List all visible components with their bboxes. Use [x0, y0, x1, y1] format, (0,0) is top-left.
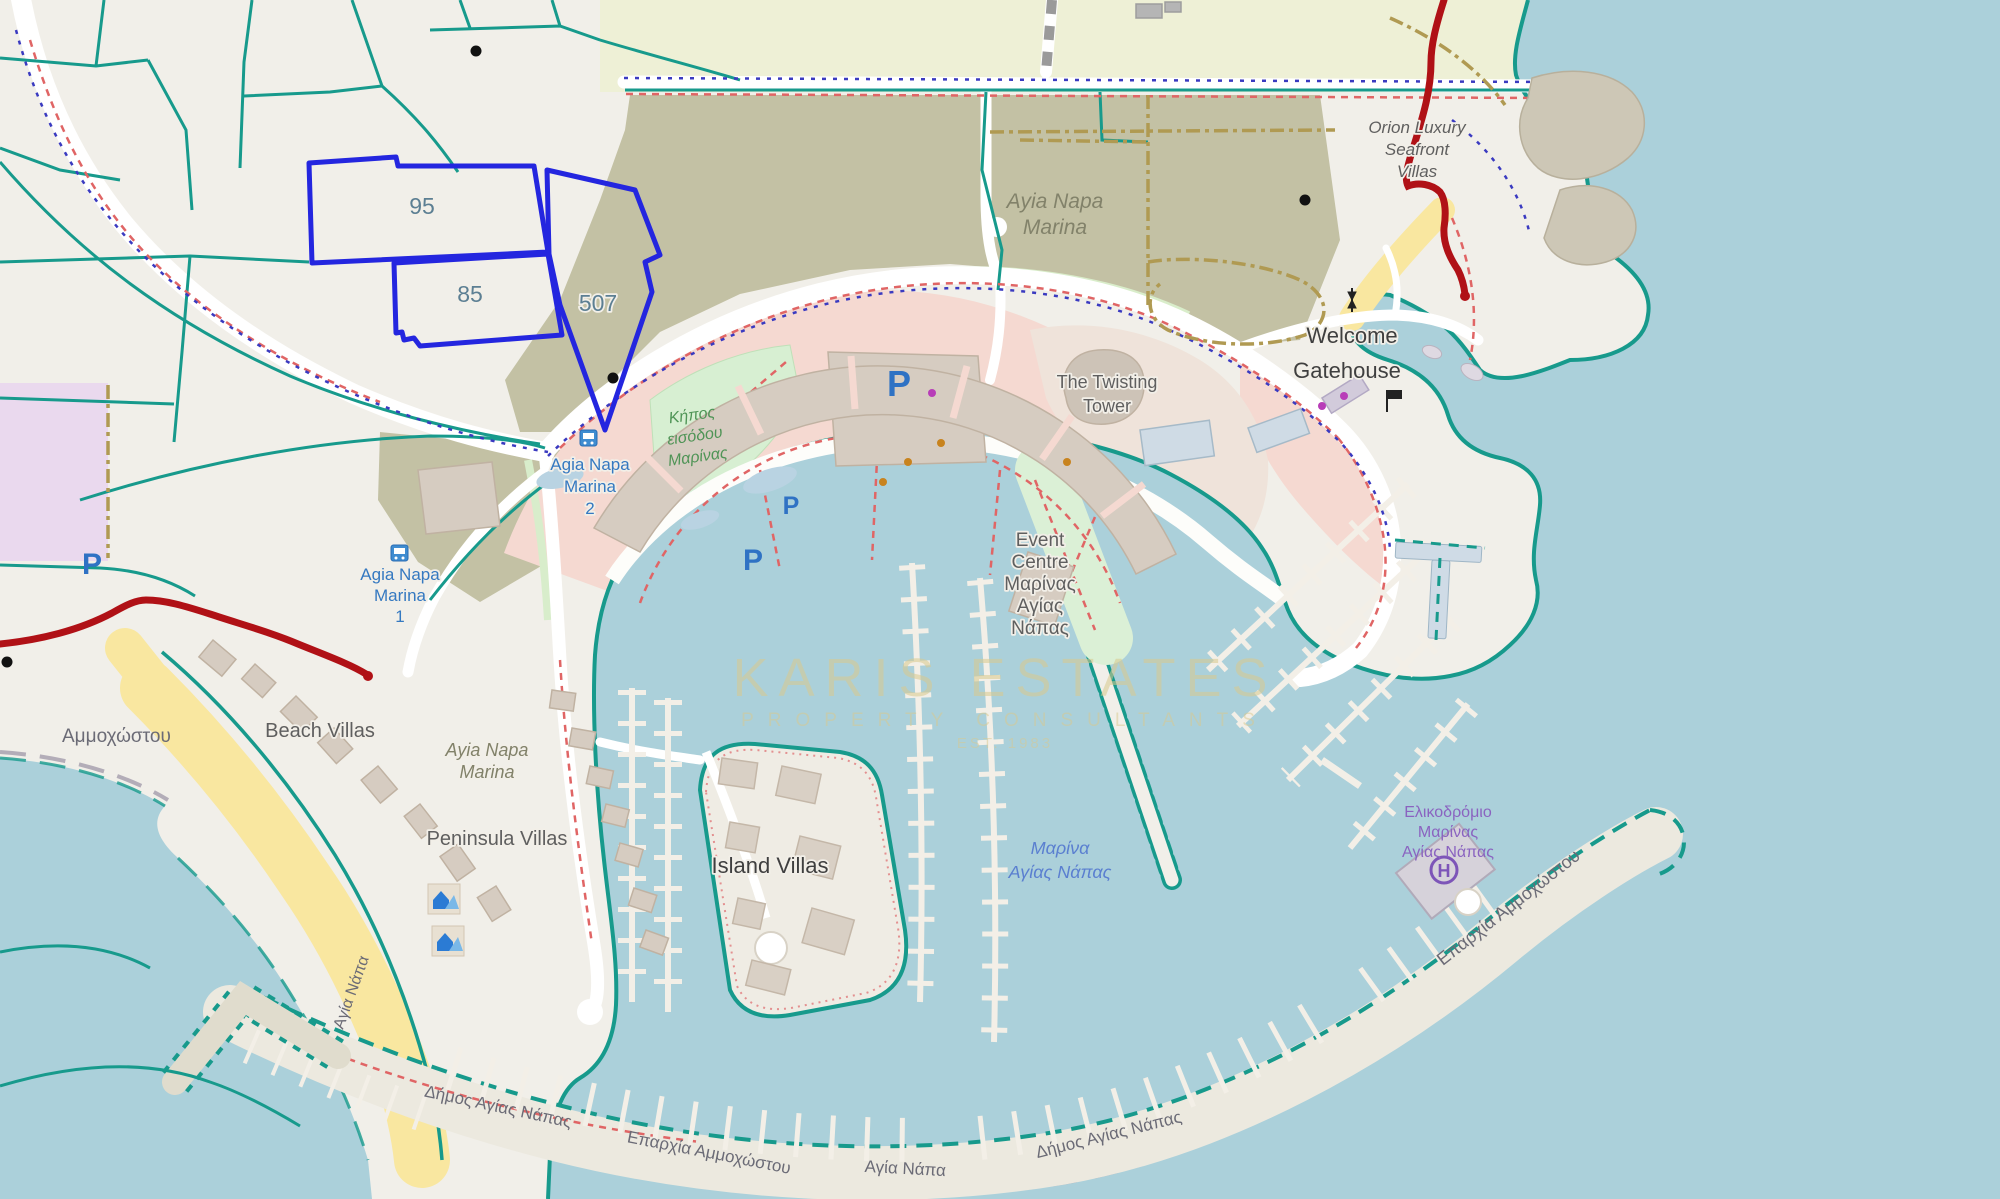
bus-stop-2-label: Agia Napa	[550, 455, 630, 474]
svg-text:1: 1	[395, 607, 404, 626]
poi-dot-3	[2, 657, 13, 668]
helipad-icon-letter: H	[1438, 861, 1451, 881]
event-centre-label: Event	[1016, 530, 1065, 551]
marina-water-label: Μαρίνα	[1031, 838, 1091, 858]
plot-507-label: 507	[579, 290, 617, 316]
building-west-block	[418, 462, 500, 534]
boardwalk-dashes	[1046, 0, 1052, 72]
svg-text:Μαρίνας: Μαρίνας	[1004, 574, 1075, 595]
svg-text:Villas: Villas	[1397, 162, 1438, 181]
poi-dot-4	[1300, 195, 1311, 206]
marina-area-top-label: Ayia Napa	[1005, 190, 1104, 213]
island-villas-label: Island Villas	[712, 853, 829, 878]
orion-label: Orion Luxury	[1368, 118, 1467, 137]
marina-area-mid-label: Ayia Napa	[445, 740, 529, 760]
road-top	[624, 82, 1548, 86]
svg-text:Gatehouse: Gatehouse	[1293, 358, 1401, 383]
svg-text:Νάπας: Νάπας	[1011, 618, 1069, 639]
watermark-brand: KARIS ESTATES	[732, 648, 1277, 708]
svg-text:Αγίας Νάπας: Αγίας Νάπας	[1402, 844, 1494, 861]
bus-stop-1-label: Agia Napa	[360, 565, 440, 584]
gatehouse-label: Welcome	[1306, 323, 1397, 348]
admin-ammochostou: Αμμοχώστου	[62, 726, 171, 747]
bus-stop-icon-2[interactable]	[580, 430, 597, 446]
svg-text:Centre: Centre	[1011, 552, 1068, 573]
bus-stop-icon-1[interactable]	[391, 545, 408, 561]
svg-text:Μαρίνας: Μαρίνας	[1418, 824, 1478, 841]
parking-icon-4[interactable]: P	[82, 548, 102, 581]
svg-text:Marina: Marina	[564, 477, 617, 496]
svg-text:Marina: Marina	[459, 762, 514, 782]
map-canvas[interactable]: H	[0, 0, 2000, 1199]
watermark-est: EST. 1983	[957, 735, 1053, 752]
poi-dot-2	[608, 373, 619, 384]
beach-resort-icon-2[interactable]	[432, 926, 464, 956]
plot-95-label: 95	[409, 193, 435, 219]
svg-text:Marina: Marina	[1023, 216, 1087, 239]
parking-icon-2[interactable]: P	[783, 492, 800, 520]
heliport-label: Ελικοδρόμιο	[1404, 804, 1492, 821]
parking-icon-3[interactable]: P	[743, 544, 763, 577]
building-orion-2	[1544, 186, 1636, 265]
plot-85-label: 85	[457, 281, 483, 307]
watermark-subtitle: PROPERTY CONSULTANTS	[741, 710, 1269, 731]
svg-text:Marina: Marina	[374, 586, 427, 605]
svg-text:Αγίας Νάπας: Αγίας Νάπας	[1008, 862, 1112, 882]
peninsula-villas-label: Peninsula Villas	[427, 828, 568, 850]
svg-text:Αγίας: Αγίας	[1017, 596, 1063, 617]
twisting-tower-label: The Twisting	[1057, 372, 1158, 392]
culdesac-peninsula	[577, 999, 603, 1025]
retail-area	[0, 383, 108, 561]
svg-text:2: 2	[585, 499, 594, 518]
beach-resort-icon-1[interactable]	[428, 884, 460, 914]
island-culdesac	[755, 932, 787, 964]
culdesac-helipad	[1455, 889, 1481, 915]
svg-text:Tower: Tower	[1083, 396, 1131, 416]
svg-text:Seafront: Seafront	[1385, 140, 1451, 159]
parking-icon-1[interactable]: P	[887, 363, 911, 404]
map-viewport[interactable]: H	[0, 0, 2000, 1199]
poi-dot-1	[471, 46, 482, 57]
beach-villas-label: Beach Villas	[265, 720, 375, 742]
bay-beach-tip	[125, 648, 152, 682]
